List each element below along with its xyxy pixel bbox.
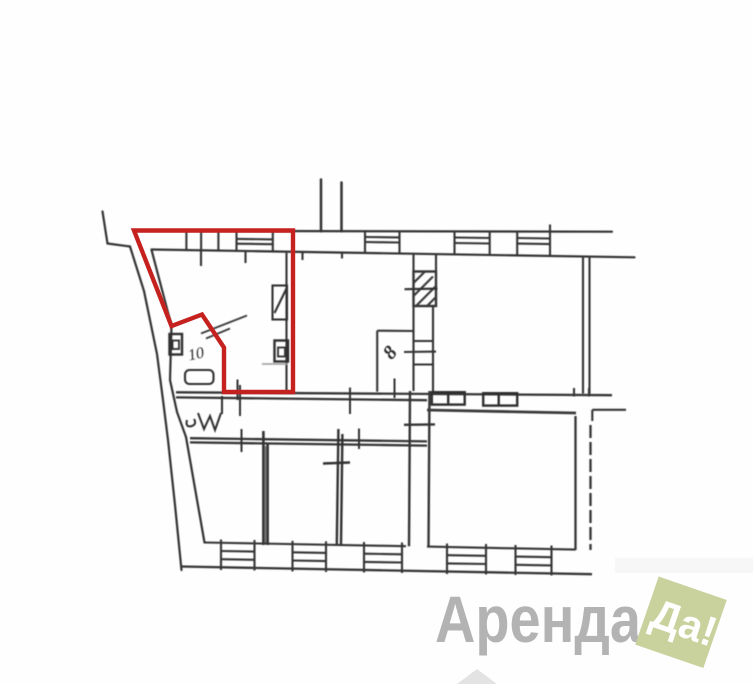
svg-text:Аренда: Аренда bbox=[435, 582, 642, 656]
